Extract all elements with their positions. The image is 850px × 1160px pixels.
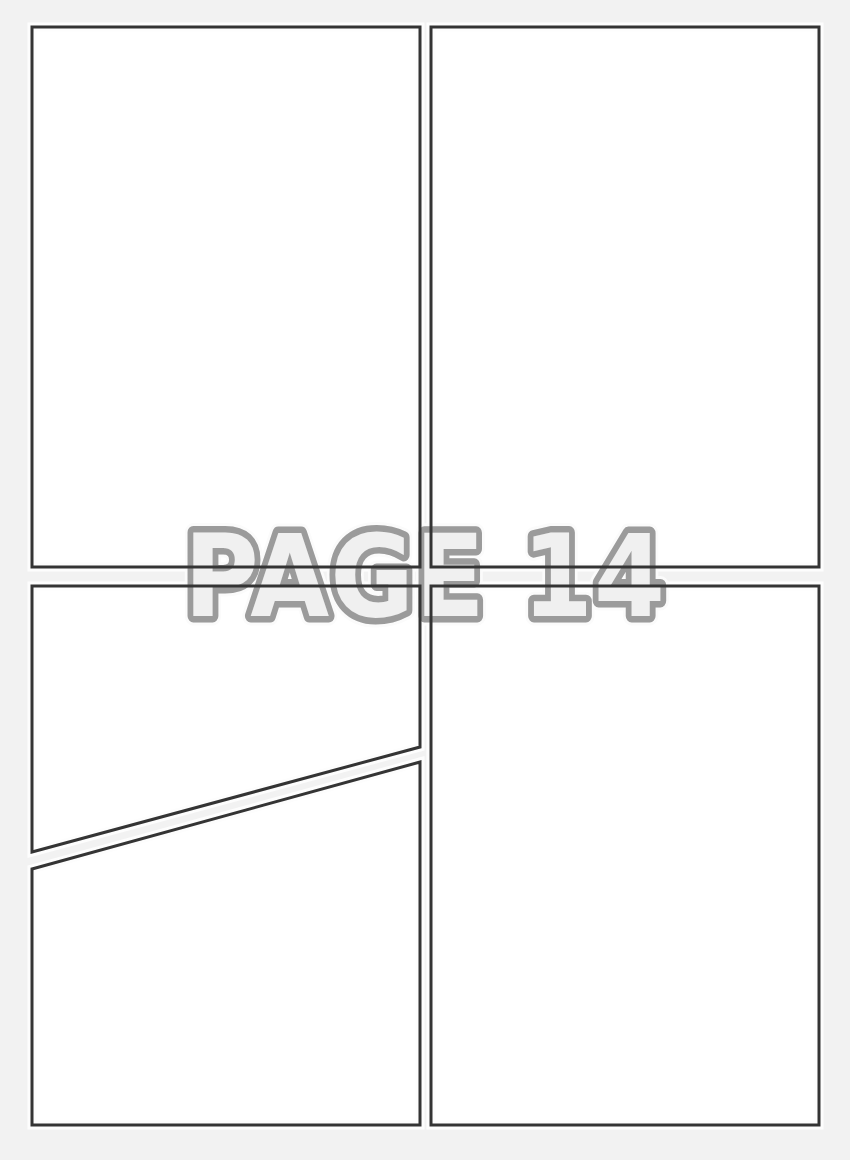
page-watermark: PAGE 14 PAGE 14 PAGE 14: [184, 510, 666, 643]
panel-top-left-fill: [32, 27, 420, 567]
comic-template-page: PAGE 14 PAGE 14 PAGE 14: [0, 0, 850, 1160]
watermark-fill-text: PAGE 14: [184, 510, 666, 643]
panel-bottom-right-fill: [431, 586, 819, 1125]
comic-template-canvas: PAGE 14 PAGE 14 PAGE 14: [0, 0, 850, 1160]
panel-top-right-fill: [431, 27, 819, 567]
